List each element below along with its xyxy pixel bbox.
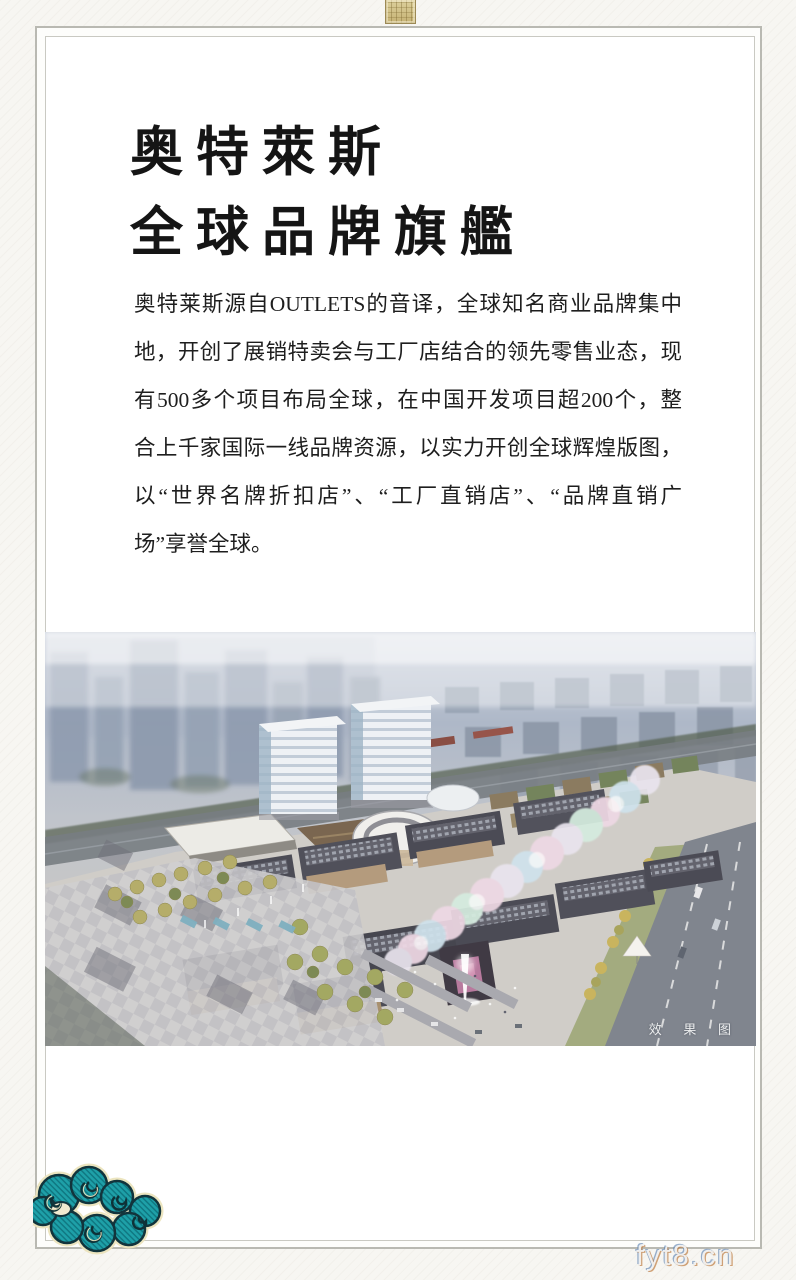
body-line: 奥特莱斯源自OUTLETS的音译，全球知名商业品牌集中 xyxy=(134,280,682,328)
body-line: 场”享誉全球。 xyxy=(134,520,682,568)
body-paragraph: 奥特莱斯源自OUTLETS的音译，全球知名商业品牌集中 地，开创了展销特卖会与工… xyxy=(134,280,682,568)
body-line: 地，开创了展销特卖会与工厂店结合的领先零售业态，现 xyxy=(134,328,682,376)
auspicious-cloud-art xyxy=(33,1155,174,1256)
title-line-1: 奥特萊斯 xyxy=(130,112,526,192)
body-line: 以“世界名牌折扣店”、“工厂直销店”、“品牌直销广 xyxy=(134,472,682,520)
mall-aerial-rendering-art xyxy=(45,632,756,1046)
fog-layer-top xyxy=(45,632,756,664)
watermark-text: fyt8.cn xyxy=(636,1240,735,1273)
cloud-ornament-icon xyxy=(33,1155,174,1256)
gold-seal-icon xyxy=(385,0,416,24)
body-line: 有500多个项目布局全球，在中国开发项目超200个，整 xyxy=(134,376,682,424)
page-title: 奥特萊斯 全球品牌旗艦 xyxy=(130,112,526,272)
photo-caption: 效 果 图 xyxy=(649,1019,740,1038)
title-line-2: 全球品牌旗艦 xyxy=(130,192,526,272)
mall-aerial-rendering-photo: 效 果 图 xyxy=(45,632,756,1046)
body-line: 合上千家国际一线品牌资源，以实力开创全球辉煌版图， xyxy=(134,424,682,472)
